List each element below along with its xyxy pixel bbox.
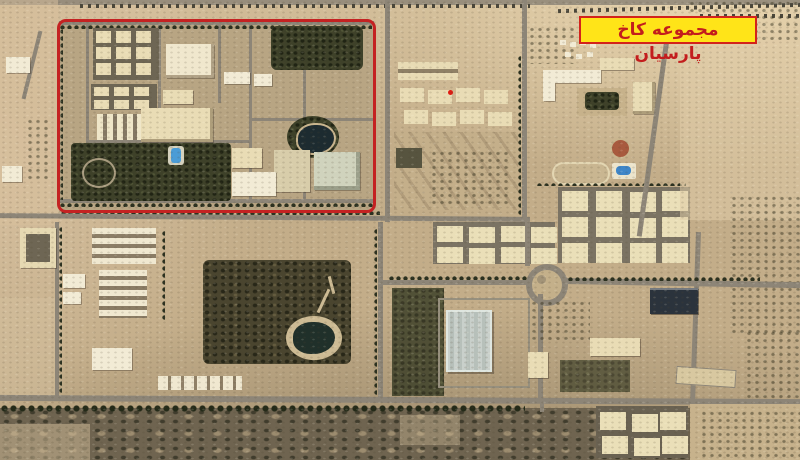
- road-horizontal: [383, 280, 528, 285]
- circular-structure: [610, 138, 631, 159]
- satellite-image: مجموعه کاخ پارسیان: [0, 0, 800, 460]
- long-building: [543, 70, 601, 83]
- tree-line: [59, 226, 62, 396]
- scrub-patch: [528, 26, 578, 64]
- desert-patch: [680, 40, 800, 220]
- red-marker-dot: [448, 90, 453, 95]
- road-vertical: [522, 0, 527, 224]
- courtyard-building: [20, 228, 56, 268]
- long-building: [590, 338, 640, 356]
- scrub-patch: [530, 300, 590, 340]
- running-track: [552, 162, 610, 185]
- building-cluster: [400, 88, 424, 102]
- tree-line: [374, 228, 377, 398]
- building: [2, 166, 22, 182]
- hangar-building: [446, 310, 492, 372]
- swimming-pool: [616, 166, 631, 175]
- scrub-patch: [745, 330, 800, 402]
- road-vertical: [378, 222, 383, 402]
- building-wing: [543, 83, 555, 101]
- roundabout-center: [537, 275, 546, 284]
- road-stub: [540, 400, 544, 412]
- annotation-label: مجموعه کاخ پارسیان: [579, 16, 757, 44]
- building: [600, 58, 634, 70]
- road-connector: [525, 222, 530, 266]
- building: [528, 352, 548, 378]
- building: [92, 348, 132, 370]
- desert-patch: [400, 415, 460, 445]
- tree-line: [162, 230, 165, 322]
- tree-line: [388, 276, 528, 280]
- road-vertical: [385, 0, 390, 222]
- warehouse-rows: [99, 270, 147, 318]
- dark-structure: [396, 148, 422, 168]
- building: [633, 82, 655, 114]
- garden-grove: [392, 288, 444, 396]
- tree-line: [536, 183, 686, 186]
- dark-roof-building: [650, 288, 698, 314]
- building: [6, 57, 30, 73]
- desert-patch: [0, 424, 90, 460]
- desert-patch: [0, 0, 58, 225]
- scrub-patch: [730, 195, 800, 335]
- desert-patch: [0, 298, 55, 398]
- scrub-patch: [26, 118, 50, 180]
- annotation-rectangle: [57, 19, 376, 213]
- building-rows: [398, 62, 458, 80]
- building: [63, 292, 81, 304]
- housing-blocks: [437, 226, 463, 242]
- warehouse-rows: [92, 228, 156, 264]
- housing-blocks: [562, 191, 588, 211]
- garden-grove: [560, 360, 630, 392]
- housing-blocks: [600, 412, 626, 430]
- building-row: [158, 376, 242, 390]
- scrub-patch: [430, 150, 510, 205]
- tree-line: [518, 55, 521, 220]
- small-structures: [560, 40, 566, 45]
- vehicle-row: [80, 4, 530, 8]
- scrub-patch: [700, 410, 800, 460]
- building: [63, 274, 85, 288]
- tree-line: [0, 405, 525, 412]
- garden-grove: [585, 92, 619, 110]
- tree-line: [560, 277, 760, 281]
